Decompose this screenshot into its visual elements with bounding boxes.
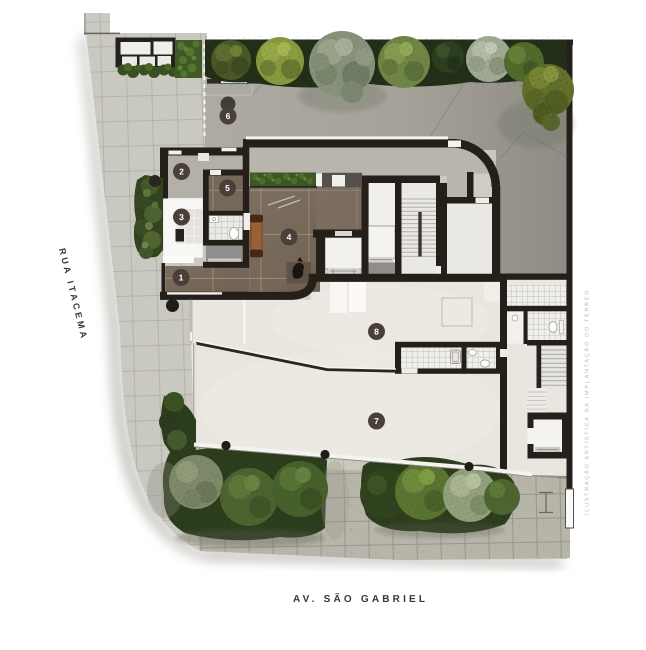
svg-text:5: 5	[225, 183, 230, 193]
svg-text:ILUSTRAÇÃO ARTÍSTICA DA IMPLAN: ILUSTRAÇÃO ARTÍSTICA DA IMPLANTAÇÃO DO T…	[584, 289, 591, 515]
svg-text:2: 2	[179, 167, 184, 177]
svg-text:6: 6	[226, 111, 231, 121]
svg-text:3: 3	[179, 212, 184, 222]
svg-text:AV. SÃO GABRIEL: AV. SÃO GABRIEL	[293, 593, 428, 605]
svg-text:8: 8	[374, 327, 379, 337]
svg-text:7: 7	[374, 416, 379, 426]
svg-text:1: 1	[179, 273, 184, 283]
svg-text:4: 4	[287, 232, 292, 242]
